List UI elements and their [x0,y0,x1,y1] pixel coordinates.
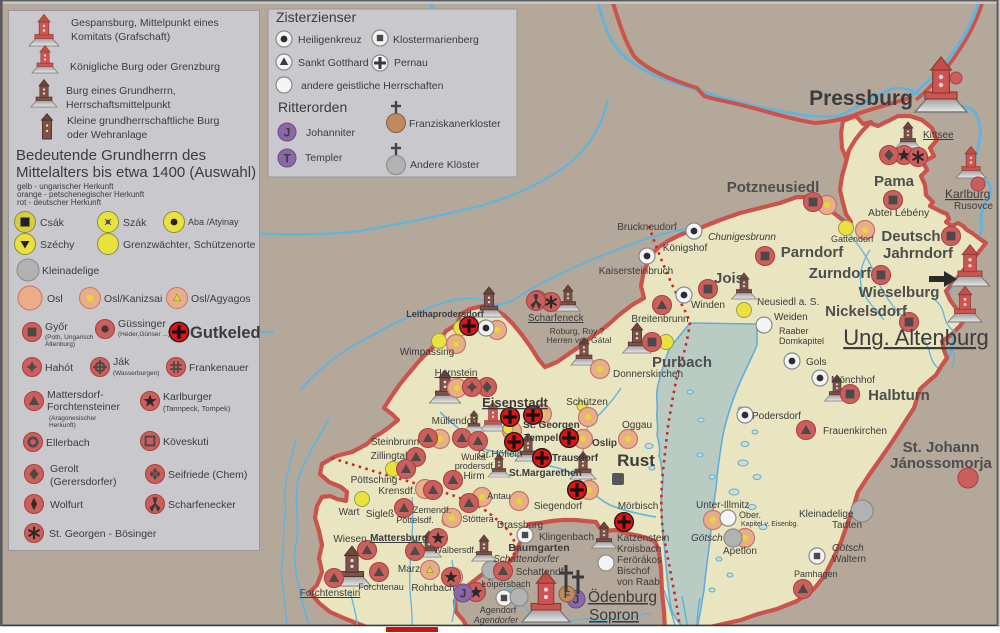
svg-text:(Héder,Günser ...): (Héder,Günser ...) [118,331,170,338]
svg-text:andere geistliche Herrschaften: andere geistliche Herrschaften [301,80,444,92]
svg-text:Siegendorf: Siegendorf [534,501,583,512]
svg-text:St.Margarethen: St.Margarethen [509,468,582,479]
svg-text:Donnerskirchen: Donnerskirchen [613,369,683,380]
svg-text:Klostermarienberg: Klostermarienberg [393,34,479,46]
svg-text:Winden: Winden [691,300,725,311]
svg-text:Forchtenstein: Forchtenstein [300,588,361,599]
svg-text:Andere Klöster: Andere Klöster [410,159,480,171]
svg-text:Altenburg): Altenburg) [45,341,75,348]
svg-text:Forchtensteiner: Forchtensteiner [47,401,120,413]
svg-text:Steinbrunn: Steinbrunn [371,437,419,448]
svg-text:Gerolt: Gerolt [50,463,79,475]
svg-text:Rohrbach: Rohrbach [411,583,454,594]
svg-text:Pamhagen: Pamhagen [794,569,838,579]
svg-text:oder Wehranlage: oder Wehranlage [67,129,148,141]
svg-text:Kleinadelige: Kleinadelige [799,509,854,520]
svg-text:Baumgarten: Baumgarten [508,542,569,554]
svg-text:Mittelalters bis etwa 1400 (A: Mittelalters bis etwa 1400 (Auswahl) [16,164,256,181]
svg-text:Gespansburg, Mittelpunkt eines: Gespansburg, Mittelpunkt eines [71,17,219,29]
svg-text:Wiesen: Wiesen [333,534,366,545]
svg-text:Schattendorfer: Schattendorfer [493,554,559,565]
svg-text:Aba /Atyinay: Aba /Atyinay [188,217,239,227]
svg-text:Hahót: Hahót [45,362,73,374]
svg-text:Gattendorf: Gattendorf [831,234,874,244]
svg-text:prodersdf.: prodersdf. [455,461,496,471]
svg-text:St. Georgen: St. Georgen [523,420,580,431]
svg-text:Jois: Jois [714,270,744,287]
svg-text:Grenzwächter, Schützenorte: Grenzwächter, Schützenorte [123,239,256,251]
svg-text:Pama: Pama [874,173,915,190]
svg-text:Katzenstein: Katzenstein [617,533,669,544]
svg-text:St. Georgen - Bösinger: St. Georgen - Bösinger [49,528,157,540]
svg-text:Waltern: Waltern [832,554,866,565]
svg-text:Tempel: Tempel [524,433,558,444]
svg-text:Sigleß: Sigleß [366,509,394,520]
svg-text:Szák: Szák [123,217,147,229]
svg-text:Wieselburg: Wieselburg [859,284,940,301]
svg-text:(Wasserburgen): (Wasserburgen) [113,370,159,377]
svg-text:Raaber: Raaber [779,326,809,336]
svg-text:Scharfeneck: Scharfeneck [528,313,585,324]
svg-text:Frauenkirchen: Frauenkirchen [823,426,887,437]
svg-text:Abtei Lébény: Abtei Lébény [868,207,930,219]
svg-text:Forchtenau: Forchtenau [358,582,404,592]
svg-text:(Aragonesischer: (Aragonesischer [49,415,97,422]
svg-text:Wimpassing: Wimpassing [400,347,454,358]
svg-text:St. Johann: St. Johann [903,439,980,456]
svg-text:Kittsee: Kittsee [923,130,954,141]
svg-text:Bruckneudorf: Bruckneudorf [617,222,677,233]
svg-text:Ober.: Ober. [739,510,761,520]
svg-text:Kleinadelige: Kleinadelige [42,265,99,277]
svg-text:Győr: Győr [45,321,68,333]
svg-text:Osl: Osl [47,293,63,305]
svg-text:Komitats (Grafschaft): Komitats (Grafschaft) [71,31,170,43]
svg-text:Bedeutende Grundherrn des: Bedeutende Grundherrn des [16,147,206,164]
svg-text:Zemendf.: Zemendf. [413,505,451,515]
svg-text:Seifriede (Chem): Seifriede (Chem) [168,469,247,481]
svg-text:Oggau: Oggau [622,420,652,431]
svg-text:Königliche Burg oder Grenzburg: Königliche Burg oder Grenzburg [70,61,220,73]
svg-text:Marz: Marz [398,564,420,575]
svg-text:Eisenstadt: Eisenstadt [482,395,548,410]
svg-text:Agendorf: Agendorf [480,605,517,615]
svg-text:Potzneusiedl: Potzneusiedl [727,179,820,196]
svg-text:(Poth, Ungarisch: (Poth, Ungarisch [45,334,94,341]
svg-text:Ritterorden: Ritterorden [278,99,347,115]
svg-text:Götsch: Götsch [691,533,723,544]
svg-text:Ferörákos: Ferörákos [617,555,662,566]
svg-text:Zisterzienser: Zisterzienser [276,9,356,25]
svg-text:Wolfurt: Wolfurt [50,499,83,511]
svg-text:Agendorfer: Agendorfer [473,615,520,625]
svg-text:Kleine grundherrschaftliche Bu: Kleine grundherrschaftliche Burg [67,115,219,127]
svg-text:(Gerersdorfer): (Gerersdorfer) [50,476,117,488]
svg-text:Mörbisch: Mörbisch [618,501,659,512]
svg-text:Güssinger: Güssinger [118,318,166,330]
svg-text:Frankenauer: Frankenauer [189,362,249,374]
svg-text:Oslip: Oslip [592,438,617,449]
svg-text:Scharfenecker: Scharfenecker [168,499,236,511]
svg-text:Ung. Altenburg: Ung. Altenburg [843,325,989,350]
svg-text:Heiligenkreuz: Heiligenkreuz [298,34,362,46]
svg-text:Walbersdf.: Walbersdf. [434,545,477,555]
svg-text:Trausdorf: Trausdorf [552,453,599,464]
svg-text:Zillingtal: Zillingtal [371,451,408,462]
svg-text:Ellerbach: Ellerbach [46,437,90,449]
svg-text:Osl/Agyagos: Osl/Agyagos [191,293,251,305]
svg-text:Herren von Gátal: Herren von Gátal [547,335,612,345]
svg-text:Herrschaftsmittelpunkt: Herrschaftsmittelpunkt [66,99,171,111]
svg-text:Klingenbach: Klingenbach [539,532,594,543]
svg-text:Mönchhof: Mönchhof [831,375,875,386]
svg-text:Pöttelsdf.: Pöttelsdf. [396,515,434,525]
svg-text:Drassburg: Drassburg [497,520,543,531]
svg-text:Podersdorf: Podersdorf [752,411,801,422]
svg-text:Nickelsdorf: Nickelsdorf [825,303,908,320]
svg-text:Antau: Antau [487,491,511,501]
svg-text:Deutsch: Deutsch [881,228,940,245]
svg-text:Csák: Csák [40,217,65,229]
svg-text:Schattendf.: Schattendf. [516,567,567,578]
svg-text:Rust: Rust [617,451,655,470]
svg-text:Gols: Gols [806,357,827,368]
svg-text:Götsch: Götsch [832,543,864,554]
svg-text:Széchy: Széchy [40,239,75,251]
svg-text:Gutkeled: Gutkeled [190,324,261,342]
svg-text:Breitenbrunn: Breitenbrunn [631,314,688,325]
svg-text:Pressburg: Pressburg [809,87,913,110]
svg-text:Rusovce: Rusovce [954,201,993,212]
svg-text:Bischof: Bischof [617,566,650,577]
svg-text:Jánossomorja: Jánossomorja [890,455,992,472]
svg-text:Kapitel v. Eisenbg.: Kapitel v. Eisenbg. [741,521,799,528]
svg-text:Ödenburg: Ödenburg [588,588,657,606]
svg-text:Johanniter: Johanniter [306,127,356,139]
svg-text:Krensdf.: Krensdf. [378,486,415,497]
svg-text:Kaisersteinbruch: Kaisersteinbruch [599,266,673,277]
svg-text:(Tannpeck, Tompek): (Tannpeck, Tompek) [163,404,231,413]
svg-text:Templer: Templer [305,152,343,164]
svg-text:Franziskanerkloster: Franziskanerkloster [409,118,501,130]
svg-text:Herkunft): Herkunft) [49,422,76,429]
svg-text:Osl/Kanizsai: Osl/Kanizsai [104,293,162,305]
svg-text:Stöttera: Stöttera [462,514,494,524]
svg-text:Karlburg: Karlburg [945,187,990,201]
svg-text:Apetlon: Apetlon [723,546,757,557]
svg-text:Pöttsching: Pöttsching [351,475,398,486]
svg-text:rot - deutscher Herkunft: rot - deutscher Herkunft [17,198,102,207]
svg-text:Müllendorf: Müllendorf [432,416,479,427]
svg-text:Ják: Ják [113,356,130,368]
svg-text:Kroisbach: Kroisbach [617,544,661,555]
svg-text:Sopron: Sopron [589,607,639,624]
svg-text:Jahrndorf: Jahrndorf [883,245,954,262]
svg-text:Neusiedl a. S.: Neusiedl a. S. [757,297,819,308]
svg-text:Tadten: Tadten [832,520,862,531]
svg-text:Köveskuti: Köveskuti [163,436,209,448]
svg-text:Wart: Wart [339,507,360,518]
svg-text:Leithaprodersdorf: Leithaprodersdorf [406,309,485,319]
svg-text:Domkapitel: Domkapitel [779,336,824,346]
svg-text:Mattersdorf-: Mattersdorf- [47,389,104,401]
svg-text:Mattersburg: Mattersburg [370,533,428,544]
svg-text:Karlburger: Karlburger [163,391,213,403]
svg-text:Weiden: Weiden [774,312,808,323]
svg-text:Zurndorf: Zurndorf [809,265,872,282]
svg-text:Sankt Gotthard: Sankt Gotthard [298,57,369,69]
svg-text:Hornstein: Hornstein [435,368,478,379]
svg-text:Schützen: Schützen [566,397,608,408]
svg-text:Parndorf: Parndorf [781,244,845,261]
svg-text:von Raab: von Raab [617,577,660,588]
svg-text:Halbturn: Halbturn [868,387,930,404]
svg-text:Chunigesbrunn: Chunigesbrunn [708,232,776,243]
svg-text:Burg eines Grundherrn,: Burg eines Grundherrn, [66,85,176,97]
svg-text:Pernau: Pernau [394,57,428,69]
svg-text:Loipersbach: Loipersbach [481,579,530,589]
svg-text:Königshof: Königshof [663,243,708,254]
svg-text:Hirm: Hirm [463,471,484,482]
